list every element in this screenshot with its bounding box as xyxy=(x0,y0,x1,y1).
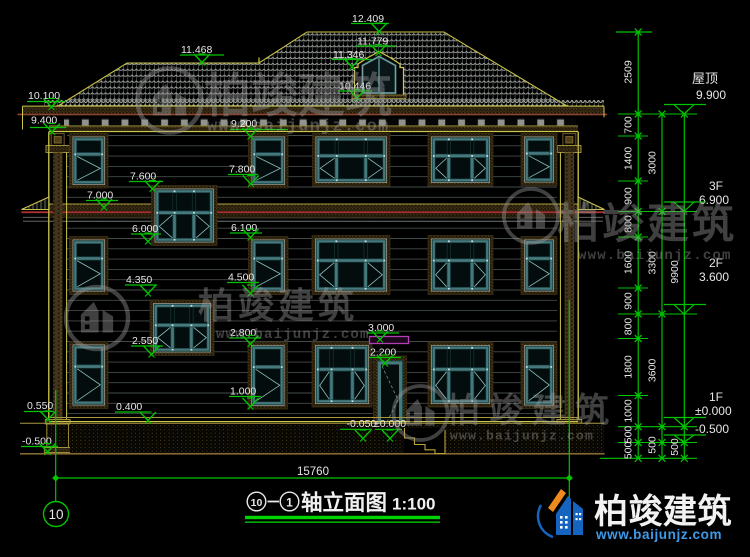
svg-text:-0.500: -0.500 xyxy=(695,422,729,436)
svg-text:4.500: 4.500 xyxy=(228,272,254,284)
svg-text:2509: 2509 xyxy=(623,60,635,84)
svg-text:15760: 15760 xyxy=(297,466,329,478)
svg-text:800: 800 xyxy=(623,318,635,336)
svg-text:www.baijunjz.com: www.baijunjz.com xyxy=(578,248,732,264)
svg-text:-0.500: -0.500 xyxy=(22,436,52,448)
svg-text:3.000: 3.000 xyxy=(368,322,394,334)
svg-text:±0.000: ±0.000 xyxy=(695,404,732,418)
svg-text:-0.050: -0.050 xyxy=(347,418,377,430)
svg-text:7.800: 7.800 xyxy=(229,164,255,176)
svg-text:3600: 3600 xyxy=(647,359,659,383)
svg-text:柏竣建筑: 柏竣建筑 xyxy=(594,492,732,531)
svg-text:屋顶: 屋顶 xyxy=(692,71,718,86)
svg-text:1000: 1000 xyxy=(623,399,635,423)
svg-text:3000: 3000 xyxy=(647,151,659,175)
svg-text:1.000: 1.000 xyxy=(230,386,256,398)
svg-text:7.000: 7.000 xyxy=(87,190,113,202)
svg-text:www.baijunjz.com: www.baijunjz.com xyxy=(216,327,370,343)
svg-text:500: 500 xyxy=(623,426,635,444)
svg-text:500: 500 xyxy=(669,438,681,456)
svg-text:www.baijunjz.com: www.baijunjz.com xyxy=(450,429,594,444)
svg-text:700: 700 xyxy=(623,116,635,134)
svg-text:900: 900 xyxy=(623,292,635,310)
svg-text:9.900: 9.900 xyxy=(696,88,726,102)
svg-text:www.baijunjz.com: www.baijunjz.com xyxy=(595,527,722,542)
svg-text:6.100: 6.100 xyxy=(231,222,257,234)
svg-text:柏竣建筑: 柏竣建筑 xyxy=(557,200,737,247)
svg-text:2.550: 2.550 xyxy=(132,335,158,347)
svg-text:10.100: 10.100 xyxy=(28,90,60,102)
svg-text:www.baijunjz.com: www.baijunjz.com xyxy=(207,118,389,137)
svg-text:2.200: 2.200 xyxy=(370,347,396,359)
svg-text:4.350: 4.350 xyxy=(126,274,152,286)
svg-text:柏竣建筑: 柏竣建筑 xyxy=(198,285,358,326)
svg-text:1800: 1800 xyxy=(623,355,635,379)
svg-text:10: 10 xyxy=(251,497,263,509)
svg-text:10: 10 xyxy=(48,507,63,522)
svg-text:0.400: 0.400 xyxy=(116,401,142,413)
svg-text:柏竣建筑: 柏竣建筑 xyxy=(446,391,618,430)
svg-text:轴立面图: 轴立面图 xyxy=(301,490,387,515)
svg-text:11.468: 11.468 xyxy=(181,44,212,56)
svg-text:500: 500 xyxy=(647,436,659,454)
svg-text:1400: 1400 xyxy=(623,147,635,171)
svg-text:500: 500 xyxy=(623,441,635,459)
svg-text:柏竣建筑: 柏竣建筑 xyxy=(204,69,392,122)
svg-text:1F: 1F xyxy=(709,390,723,404)
svg-text:1: 1 xyxy=(286,496,293,510)
svg-text:3F: 3F xyxy=(709,179,723,193)
svg-text:0.550: 0.550 xyxy=(27,400,53,412)
svg-text:±0.000: ±0.000 xyxy=(374,418,406,430)
svg-text:1:100: 1:100 xyxy=(392,495,435,514)
svg-text:3.600: 3.600 xyxy=(699,270,729,284)
